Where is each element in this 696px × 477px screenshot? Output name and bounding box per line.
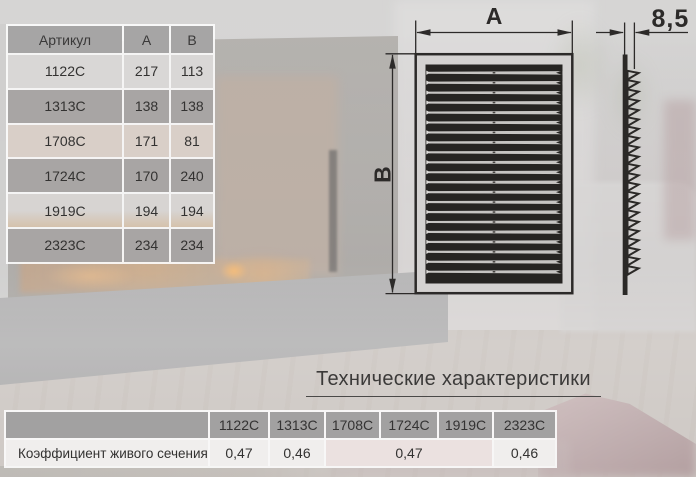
svg-text:А: А	[486, 3, 503, 29]
svg-text:8,5: 8,5	[652, 5, 690, 33]
svg-text:В: В	[370, 166, 396, 183]
